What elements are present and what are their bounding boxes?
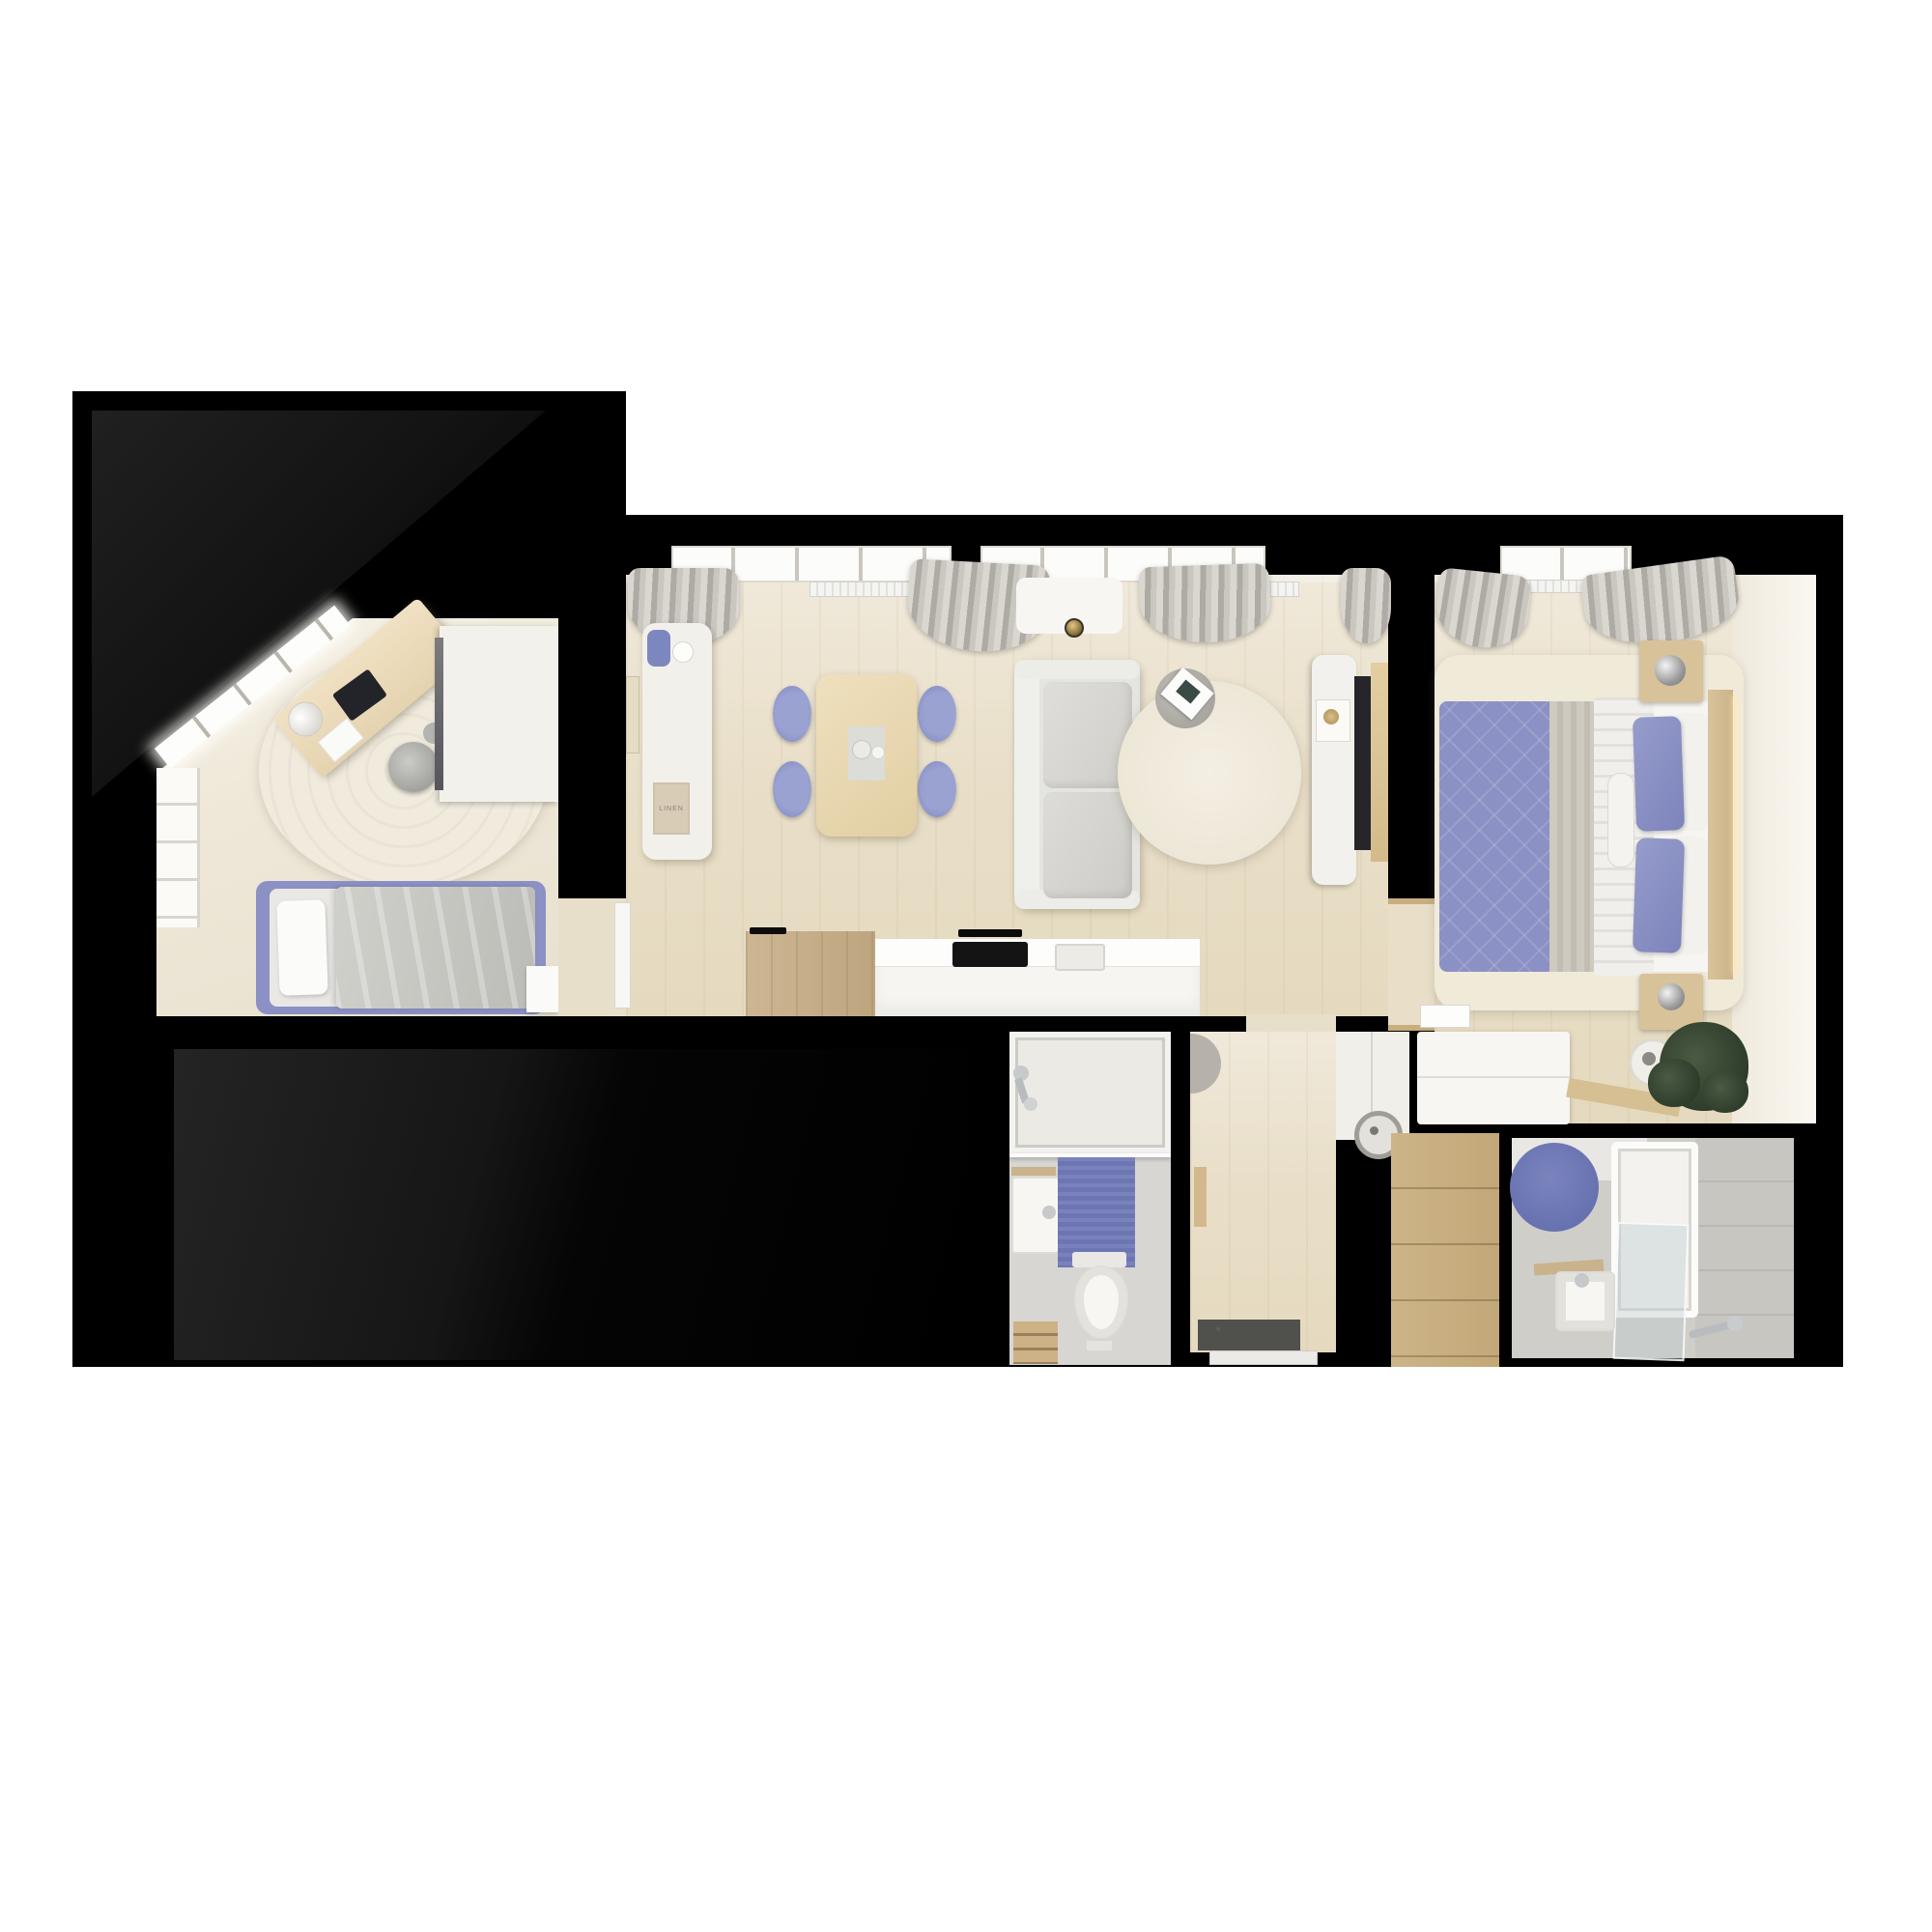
picture-frame bbox=[626, 676, 639, 753]
dining-chair bbox=[918, 686, 956, 742]
dining-chair bbox=[773, 761, 811, 817]
sink-shelf bbox=[1011, 1167, 1056, 1176]
linen-poster: LINEN bbox=[653, 782, 690, 835]
sink-tap bbox=[1042, 1206, 1056, 1219]
front-door bbox=[1209, 1350, 1318, 1365]
tv-screen bbox=[1354, 676, 1371, 850]
bedroom-desk bbox=[1417, 1032, 1570, 1124]
cooktop-handle bbox=[958, 929, 1022, 937]
table-plate bbox=[871, 746, 885, 759]
sofa-armrest bbox=[1014, 660, 1140, 679]
plant-leaves bbox=[1648, 1059, 1700, 1107]
laptop bbox=[332, 668, 387, 722]
kids-wardrobe bbox=[440, 626, 558, 802]
kitchen-counter-top bbox=[875, 939, 1200, 967]
kids-side-table bbox=[526, 966, 558, 1012]
kitchen-handle bbox=[750, 927, 786, 934]
small-bathroom-tub bbox=[1009, 1032, 1171, 1153]
floor-plate bbox=[1087, 1341, 1112, 1350]
sofa-backrest bbox=[1014, 660, 1039, 909]
thermostat-dial bbox=[1323, 709, 1339, 724]
dining-chair bbox=[773, 686, 811, 742]
kids-bed-duvet bbox=[336, 887, 535, 1009]
kids-mirror bbox=[435, 638, 443, 790]
bed-blue-quilt bbox=[1439, 701, 1549, 972]
floor-plan-stage: LINEN bbox=[0, 0, 1932, 1932]
headboard-led-strip bbox=[1733, 696, 1738, 974]
blue-vase bbox=[647, 630, 670, 667]
tv-console bbox=[1312, 655, 1356, 885]
blue-pillow bbox=[1633, 838, 1685, 953]
bolster-pillow bbox=[1607, 773, 1634, 867]
tv-wood-panel bbox=[1371, 663, 1388, 862]
sink-tap bbox=[1575, 1273, 1589, 1288]
table-vase bbox=[852, 740, 871, 759]
bed-runner bbox=[1549, 701, 1594, 972]
kitchen-sink bbox=[1055, 944, 1105, 971]
wood-step-stool bbox=[1013, 1321, 1058, 1364]
glass-shower-screen bbox=[1613, 1222, 1690, 1361]
bathroom-door-leaf bbox=[1194, 1167, 1207, 1227]
pot-clock-face bbox=[1642, 1052, 1656, 1065]
washing-machine-door bbox=[1370, 1126, 1378, 1135]
tub-faucet-knob bbox=[1024, 1097, 1037, 1111]
headboard bbox=[1708, 690, 1733, 980]
linen-poster-label: LINEN bbox=[659, 806, 684, 812]
plant-leaves bbox=[1702, 1070, 1748, 1113]
sofa-cushion bbox=[1043, 792, 1132, 898]
sphere-lamp bbox=[1658, 983, 1685, 1010]
radiator-1 bbox=[810, 582, 912, 597]
kids-room-side-window bbox=[156, 768, 200, 927]
wood-wardrobe bbox=[1391, 1133, 1499, 1367]
dining-chair bbox=[918, 761, 956, 817]
sphere-lamp bbox=[1655, 655, 1686, 686]
entrance-doormat bbox=[1198, 1320, 1300, 1350]
door-leaf bbox=[614, 902, 631, 1009]
pendant-lamp bbox=[1065, 618, 1084, 638]
blue-round-rug bbox=[1510, 1143, 1599, 1232]
blue-pillow bbox=[1633, 716, 1685, 832]
hand-shower-head bbox=[1727, 1316, 1743, 1331]
cooktop bbox=[952, 942, 1028, 967]
kids-bed-pillow bbox=[276, 899, 327, 996]
kitchen-cabinet-wood bbox=[746, 931, 875, 1016]
blue-bath-mat bbox=[1058, 1157, 1135, 1267]
glossy-sheen-bottom-left bbox=[174, 1049, 969, 1360]
bedroom-east-wall-face bbox=[1732, 575, 1816, 1123]
office-chair bbox=[388, 742, 439, 792]
curtain bbox=[1341, 568, 1391, 643]
white-vase bbox=[672, 641, 694, 663]
desk-tray bbox=[1420, 1005, 1470, 1028]
